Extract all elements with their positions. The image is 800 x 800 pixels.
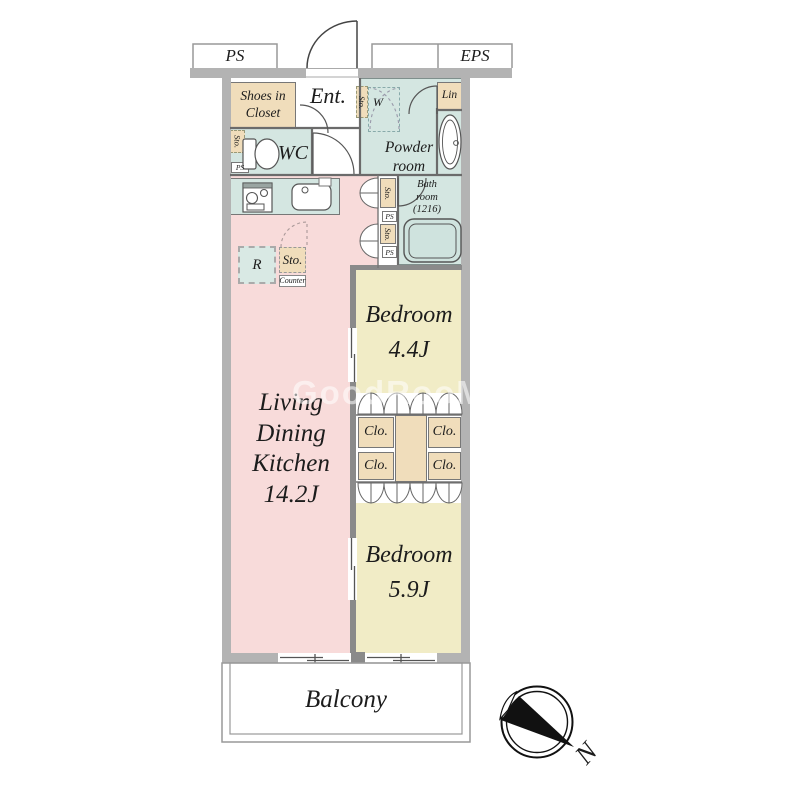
- label-compass-north: N: [558, 725, 614, 781]
- label-washer-storage: Sto.: [356, 88, 368, 117]
- label-ps: PS: [193, 45, 277, 67]
- label-shoes-closet: Shoes in Closet: [230, 87, 296, 123]
- wall-window-pier: [350, 652, 365, 663]
- label-eps: EPS: [438, 45, 512, 67]
- label-bedroom-bottom: Bedroom 5.9J: [356, 536, 462, 610]
- label-refrigerator: R: [238, 246, 276, 284]
- label-hall-storage-2: Sto.: [380, 224, 396, 244]
- compass-needle-white-tip: [500, 692, 516, 719]
- wall-top: [190, 68, 512, 78]
- label-kitchen-storage: Sto.: [279, 247, 306, 273]
- label-hall-ps-1: PS: [382, 211, 397, 222]
- wall-right: [461, 78, 470, 663]
- label-washer: W: [368, 92, 388, 112]
- kitchen-counter: [230, 178, 340, 215]
- label-powder-room: Powder room: [366, 140, 452, 176]
- label-linen: Lin: [437, 84, 462, 108]
- closet-center-column: [395, 415, 427, 482]
- watermark: GoodRooM: [292, 374, 502, 418]
- wall-divider-horizontal: [350, 265, 462, 270]
- label-wc-storage: Sto.: [230, 131, 245, 152]
- label-clo-top-left: Clo.: [358, 417, 394, 448]
- label-hall-ps-2: PS: [382, 246, 397, 258]
- label-entrance: Ent.: [296, 82, 360, 110]
- label-wc-ps: PS: [231, 162, 249, 173]
- label-clo-top-right: Clo.: [428, 417, 461, 448]
- wall-bottom: [222, 653, 470, 663]
- label-clo-bottom-right: Clo.: [428, 452, 461, 480]
- wall-left: [222, 78, 231, 663]
- hallway: [312, 128, 360, 175]
- label-wc: WC: [272, 142, 314, 164]
- label-bedroom-top: Bedroom 4.4J: [356, 296, 462, 370]
- compass-needle: [501, 696, 574, 747]
- label-hall-storage-1: Sto.: [380, 179, 396, 207]
- label-clo-bottom-left: Clo.: [358, 452, 394, 480]
- floor-plan: PS EPS Shoes in Closet Ent. Lin W Sto. W…: [0, 0, 800, 800]
- entrance-door: [307, 21, 357, 68]
- label-counter: Counter: [279, 275, 306, 287]
- label-balcony: Balcony: [222, 684, 470, 716]
- label-bath-room: Bath room (1216): [398, 179, 456, 217]
- hallway-corridor: [340, 175, 380, 268]
